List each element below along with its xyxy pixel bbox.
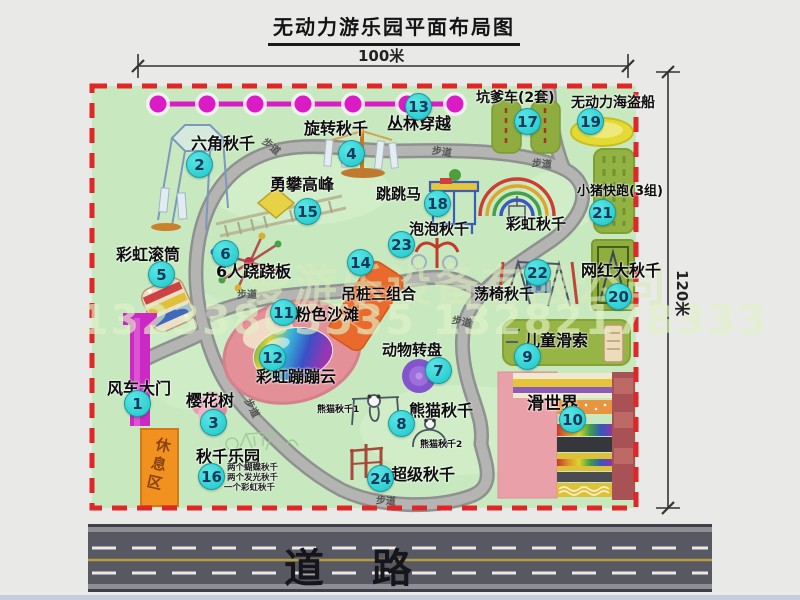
marker-3-cherry-tree: 3: [200, 409, 227, 436]
swing-park-note-3: 一个彩虹秋千: [224, 484, 275, 493]
slide-world-area: [498, 372, 635, 500]
label-cherry-tree: 樱花树: [186, 392, 234, 410]
label-rainbow-swing: 彩虹秋千: [506, 216, 566, 233]
marker-16-swing-park: 16: [198, 463, 225, 490]
marker-11-pink-beach: 11: [270, 299, 297, 326]
label-pink-beach: 粉色沙滩: [295, 306, 359, 324]
label-panda-swing-2: 熊猫秋千2: [420, 441, 462, 451]
marker-10-slide-world: 10: [559, 406, 586, 433]
marker-4-rotating-swing: 4: [338, 140, 365, 167]
marker-8-panda-swing: 8: [388, 410, 415, 437]
marker-7-animal-carousel: 7: [425, 357, 452, 384]
dimension-width-label: 100米: [358, 45, 404, 66]
swing-park-note-2: 两个发光秋千: [227, 474, 278, 483]
dimension-height-label: 120米: [672, 270, 693, 316]
label-piggy-run: 小猪快跑(3组): [577, 185, 663, 199]
marker-22-chair-swing: 22: [524, 259, 551, 286]
label-bubble-swing: 泡泡秋千: [409, 221, 469, 238]
label-big-web-swing: 网红大秋千: [581, 262, 661, 280]
label-rotating-swing: 旋转秋千: [304, 120, 368, 138]
marker-21-piggy-run: 21: [589, 199, 616, 226]
label-hexagon-swing: 六角秋千: [191, 135, 255, 153]
marker-9-kids-zipline: 9: [514, 343, 541, 370]
marker-18-jumping-horse: 18: [424, 190, 451, 217]
marker-2-hexagon-swing: 2: [186, 151, 213, 178]
label-super-swing: 超级秋千: [391, 466, 455, 484]
marker-5-rainbow-roller: 5: [148, 261, 175, 288]
label-chair-swing: 荡椅秋千: [474, 286, 534, 303]
marker-6-six-seesaw: 6: [212, 240, 239, 267]
swing-park-note-1: 两个蝴蝶秋千: [227, 464, 278, 473]
road-label: 道 路: [284, 536, 429, 594]
path-label-4: 步道: [237, 286, 257, 301]
path-label-2: 步道: [431, 142, 453, 160]
page-title: 无动力游乐园平面布局图: [268, 11, 520, 46]
marker-12-rainbow-cloud: 12: [259, 344, 286, 371]
label-hanging-post: 吊桩三组合: [341, 286, 416, 303]
label-animal-carousel: 动物转盘: [382, 342, 442, 359]
park-layout-map: 无动力游乐园平面布局图 100米 120米 爱游乐设备有限公司 13233805…: [0, 0, 800, 600]
marker-17-pit-cart: 17: [514, 108, 541, 135]
marker-13-jungle-crossing: 13: [405, 93, 432, 120]
label-pit-cart: 坑爹车(2套): [476, 91, 555, 106]
label-panda-swing: 熊猫秋千: [409, 402, 473, 420]
label-rainbow-roller: 彩虹滚筒: [116, 246, 180, 264]
marker-1-windmill-gate: 1: [124, 390, 151, 417]
label-jumping-horse: 跳跳马: [376, 186, 421, 203]
marker-23-bubble-swing: 23: [388, 231, 415, 258]
marker-20-big-web-swing: 20: [605, 283, 632, 310]
path-label-3: 步道: [531, 154, 552, 171]
marker-15-peak-climbing: 15: [294, 198, 321, 225]
marker-19-pirate-ship: 19: [577, 108, 604, 135]
label-rainbow-cloud: 彩虹蹦蹦云: [256, 368, 336, 386]
marker-14-hanging-post: 14: [347, 249, 374, 276]
label-panda-swing-1: 熊猫秋千1: [317, 406, 359, 416]
path-label-7: 步道: [376, 491, 397, 507]
label-peak-climbing: 勇攀高峰: [270, 176, 334, 194]
marker-24-super-swing: 24: [367, 465, 394, 492]
bottom-strip: [0, 595, 800, 600]
